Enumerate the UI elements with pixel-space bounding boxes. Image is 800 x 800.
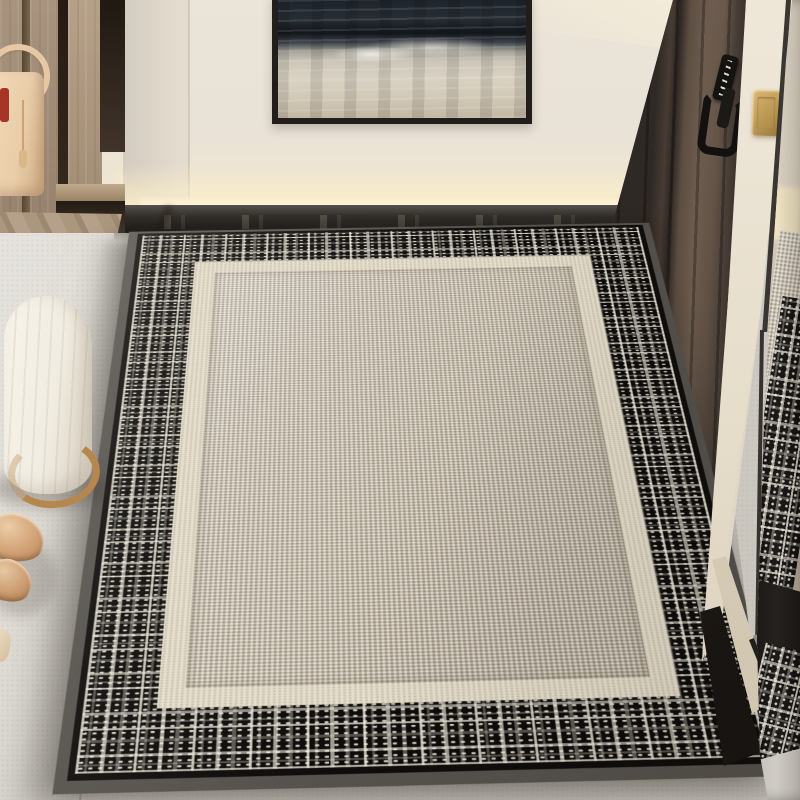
light-switch-plate [756,97,775,130]
door-handle [700,88,732,142]
entry-mat [52,223,790,795]
entryway-scene [0,0,800,800]
rug-perspective-wrap [0,0,800,800]
rug-light-sheen [52,223,790,795]
